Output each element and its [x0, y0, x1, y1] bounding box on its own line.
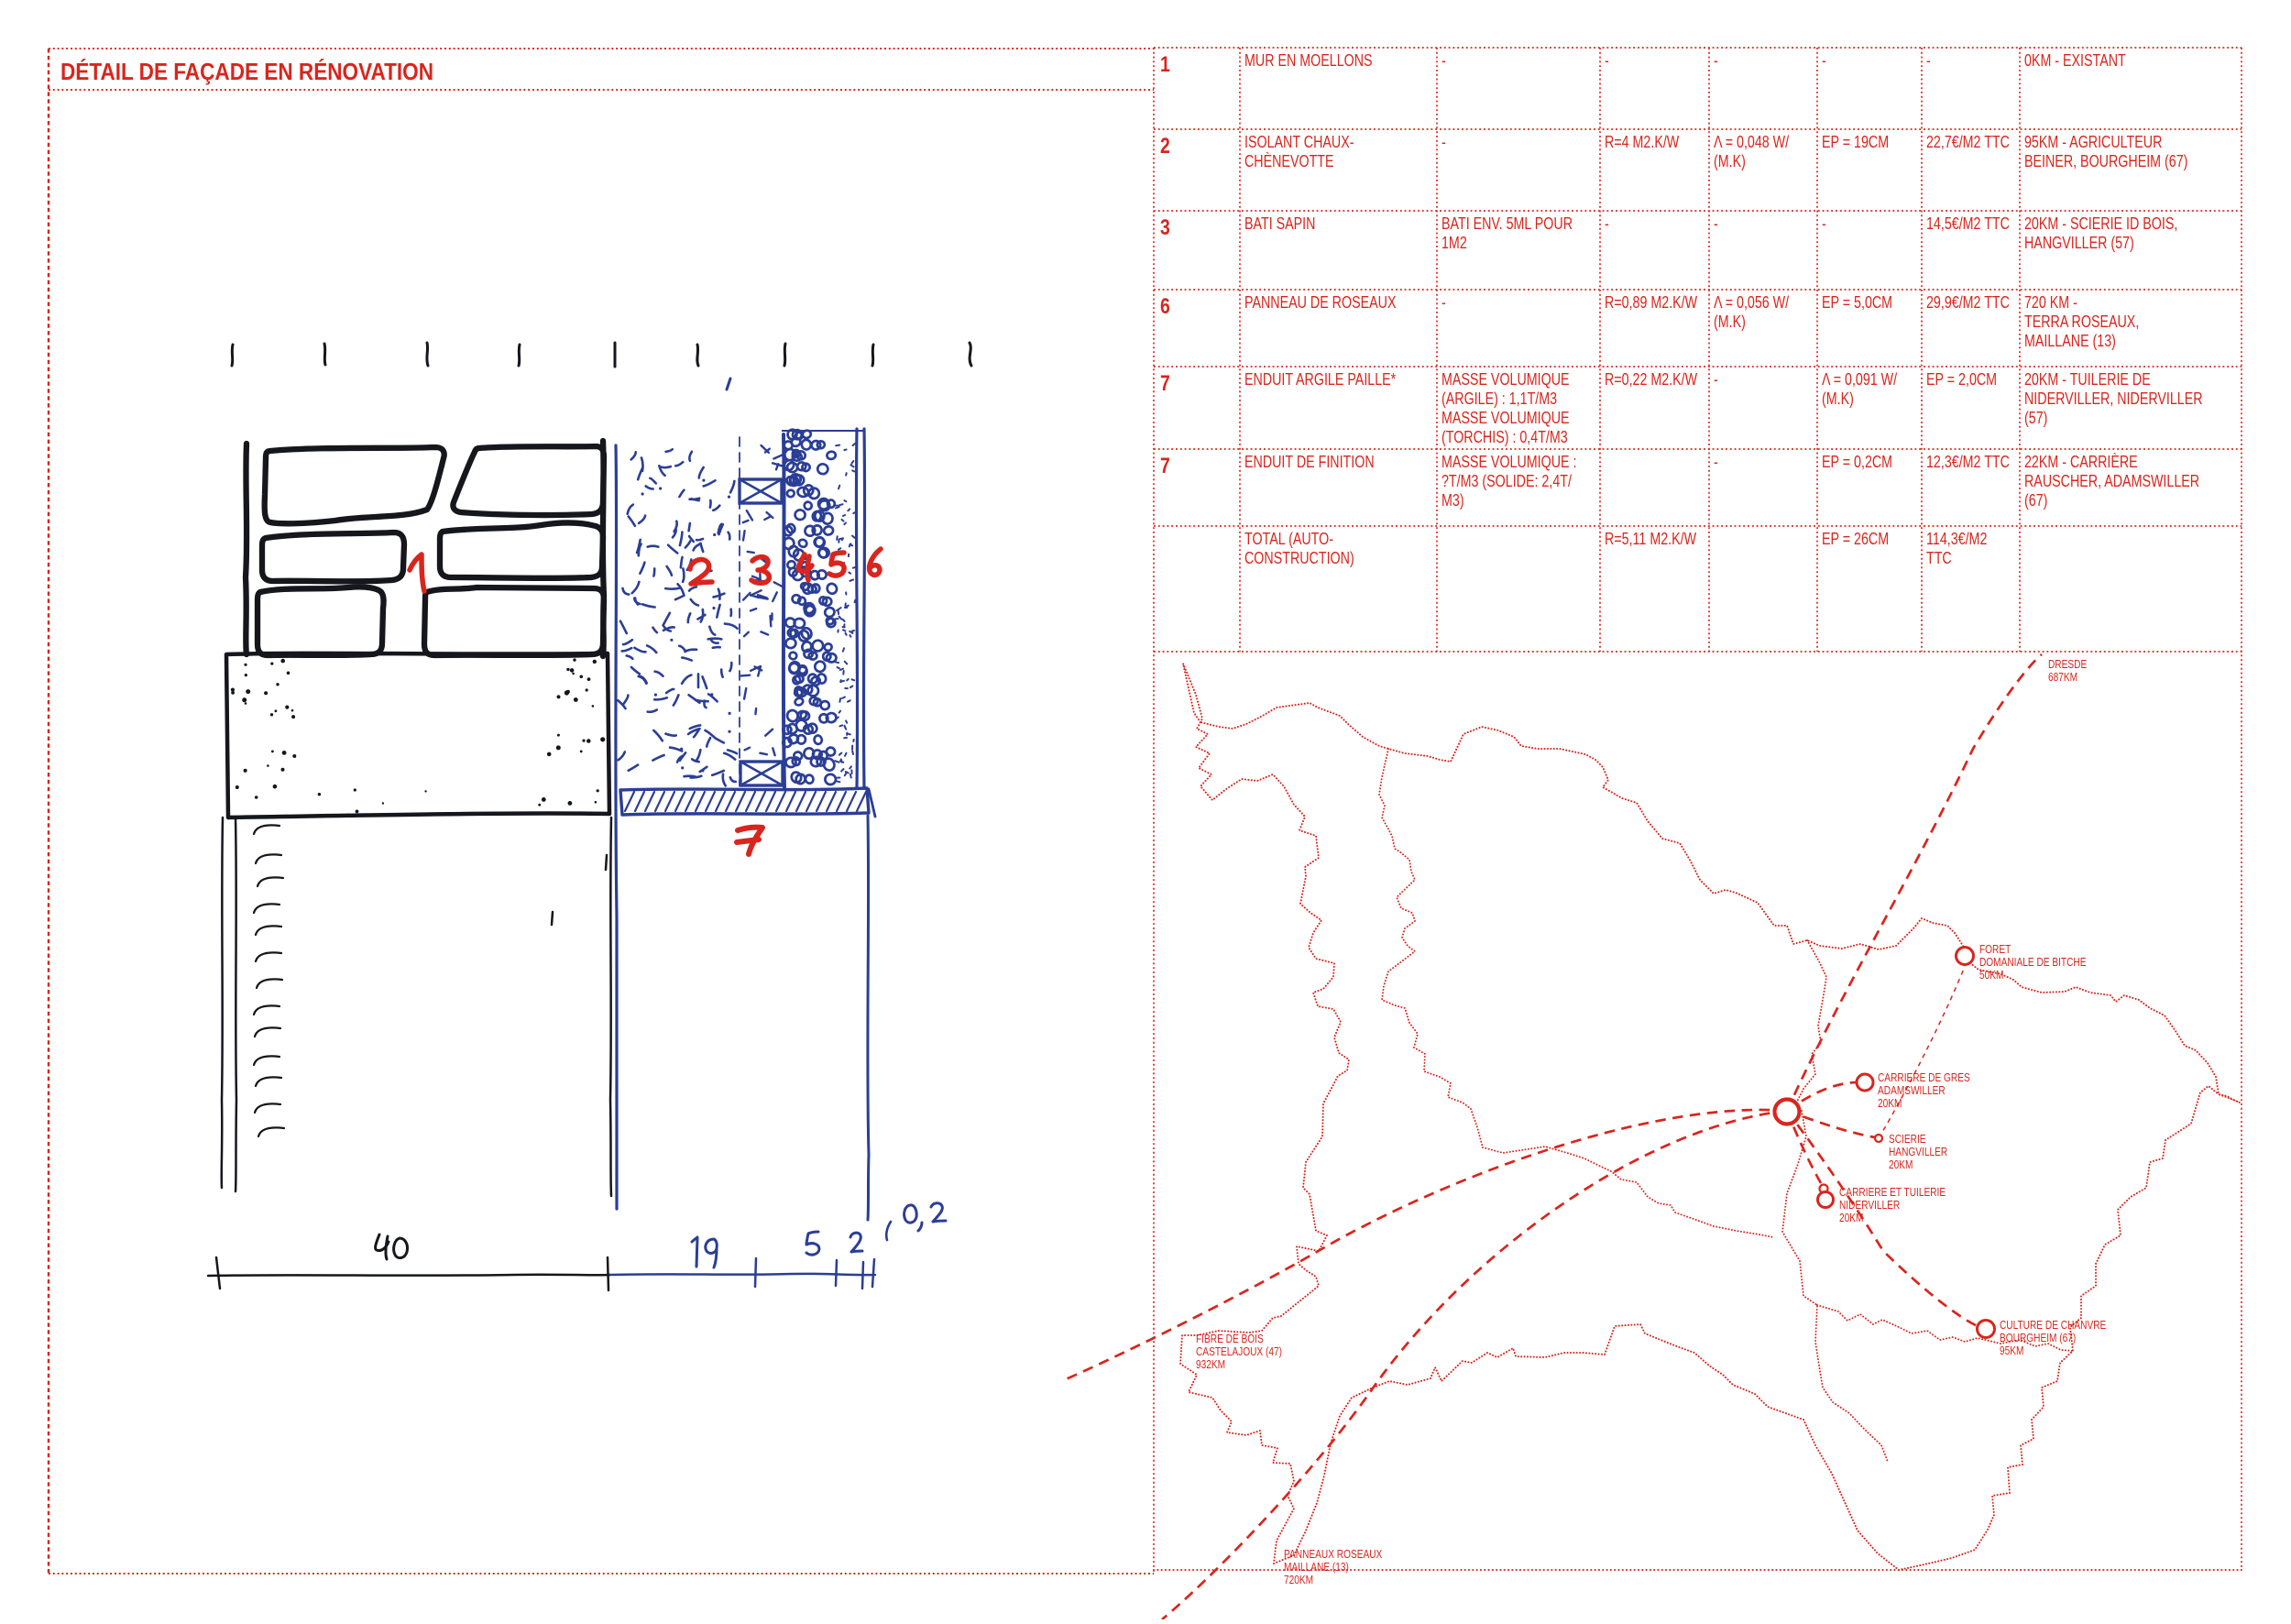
svg-text:7: 7: [1160, 453, 1170, 477]
svg-text:RAUSCHER, ADAMSWILLER: RAUSCHER, ADAMSWILLER: [2024, 472, 2199, 490]
svg-text:20KM - SCIERIE ID BOIS,: 20KM - SCIERIE ID BOIS,: [2024, 214, 2177, 233]
svg-text:MAILLANE (13): MAILLANE (13): [2024, 332, 2116, 350]
svg-text:?T/M3 (SOLIDE: 2,4T/: ?T/M3 (SOLIDE: 2,4T/: [1441, 472, 1572, 490]
svg-text:(M.K): (M.K): [1822, 390, 1854, 408]
svg-text:R=4 M2.K/W: R=4 M2.K/W: [1605, 133, 1680, 151]
svg-text:TOTAL (AUTO-: TOTAL (AUTO-: [1244, 530, 1333, 548]
svg-text:1: 1: [1160, 51, 1170, 76]
svg-text:CONSTRUCTION): CONSTRUCTION): [1244, 549, 1354, 567]
svg-text:ENDUIT DE FINITION: ENDUIT DE FINITION: [1244, 453, 1375, 471]
svg-text:-: -: [1605, 51, 1609, 70]
svg-text:22,7€/M2 TTC: 22,7€/M2 TTC: [1926, 133, 2010, 151]
svg-text:932KM: 932KM: [1196, 1358, 1225, 1371]
svg-text:HANGVILLER (57): HANGVILLER (57): [2024, 234, 2134, 252]
svg-text:PANNEAU DE ROSEAUX: PANNEAU DE ROSEAUX: [1244, 293, 1397, 312]
svg-text:DOMANIALE DE BITCHE: DOMANIALE DE BITCHE: [1979, 956, 2087, 969]
svg-text:1M2: 1M2: [1441, 234, 1467, 252]
svg-text:SCIERIE: SCIERIE: [1889, 1133, 1926, 1146]
svg-text:-: -: [1441, 293, 1446, 312]
svg-text:R=5,11 M2.K/W: R=5,11 M2.K/W: [1605, 530, 1697, 548]
svg-text:CULTURE DE CHANVRE: CULTURE DE CHANVRE: [2000, 1319, 2106, 1332]
svg-text:-: -: [1714, 453, 1718, 471]
svg-text:-: -: [1822, 51, 1826, 70]
svg-text:MASSE VOLUMIQUE :: MASSE VOLUMIQUE :: [1441, 453, 1576, 471]
svg-text:Λ = 0,091 W/: Λ = 0,091 W/: [1822, 370, 1897, 389]
svg-text:DÉTAIL DE FAÇADE EN RÉNOVATION: DÉTAIL DE FAÇADE EN RÉNOVATION: [60, 59, 433, 85]
svg-text:CHÈNEVOTTE: CHÈNEVOTTE: [1244, 151, 1334, 170]
svg-text:MASSE VOLUMIQUE: MASSE VOLUMIQUE: [1441, 370, 1570, 389]
svg-text:(57): (57): [2024, 409, 2047, 427]
svg-text:BATI ENV. 5ML POUR: BATI ENV. 5ML POUR: [1441, 214, 1573, 233]
svg-text:720KM: 720KM: [1284, 1574, 1313, 1586]
svg-text:(M.K): (M.K): [1714, 313, 1746, 331]
svg-text:Λ = 0,056 W/: Λ = 0,056 W/: [1714, 293, 1789, 312]
svg-text:0KM - EXISTANT: 0KM - EXISTANT: [2024, 51, 2126, 70]
svg-text:EP = 5,0CM: EP = 5,0CM: [1822, 293, 1892, 312]
svg-text:95KM - AGRICULTEUR: 95KM - AGRICULTEUR: [2024, 133, 2163, 151]
svg-text:NIDERVILLER: NIDERVILLER: [1839, 1199, 1900, 1212]
svg-text:(ARGILE) : 1,1T/M3: (ARGILE) : 1,1T/M3: [1441, 390, 1557, 408]
svg-text:CASTELAJOUX (47): CASTELAJOUX (47): [1196, 1345, 1282, 1358]
svg-text:ISOLANT CHAUX-: ISOLANT CHAUX-: [1244, 133, 1354, 151]
svg-text:-: -: [1714, 370, 1718, 389]
svg-text:(67): (67): [2024, 491, 2047, 510]
svg-text:R=0,89 M2.K/W: R=0,89 M2.K/W: [1605, 293, 1698, 312]
svg-text:EP = 2,0CM: EP = 2,0CM: [1926, 370, 1997, 389]
svg-text:22KM - CARRIÈRE: 22KM - CARRIÈRE: [2024, 452, 2138, 471]
svg-text:HANGVILLER: HANGVILLER: [1889, 1146, 1947, 1158]
svg-text:EP = 19CM: EP = 19CM: [1822, 133, 1889, 151]
svg-text:PANNEAUX ROSEAUX: PANNEAUX ROSEAUX: [1284, 1548, 1382, 1561]
svg-text:MAILLANE (13): MAILLANE (13): [1284, 1561, 1349, 1574]
svg-text:-: -: [1441, 133, 1446, 151]
svg-text:2: 2: [1160, 133, 1170, 158]
svg-text:DRESDE: DRESDE: [2048, 658, 2087, 671]
svg-text:7: 7: [1160, 370, 1170, 395]
svg-text:CARRIERE ET TUILERIE: CARRIERE ET TUILERIE: [1839, 1186, 1946, 1199]
svg-text:EP = 0,2CM: EP = 0,2CM: [1822, 453, 1892, 471]
svg-text:TTC: TTC: [1926, 549, 1952, 567]
svg-text:FORET: FORET: [1979, 943, 2011, 956]
svg-text:720 KM -: 720 KM -: [2024, 293, 2077, 312]
svg-text:20KM: 20KM: [1839, 1212, 1863, 1224]
svg-text:ADAMSWILLER: ADAMSWILLER: [1878, 1084, 1946, 1097]
svg-text:NIDERVILLER, NIDERVILLER: NIDERVILLER, NIDERVILLER: [2024, 390, 2203, 408]
svg-text:20KM: 20KM: [1889, 1158, 1913, 1171]
svg-text:ENDUIT ARGILE PAILLE*: ENDUIT ARGILE PAILLE*: [1244, 370, 1397, 389]
svg-text:20KM - TUILERIE DE: 20KM - TUILERIE DE: [2024, 370, 2151, 389]
svg-text:-: -: [1714, 214, 1718, 233]
svg-text:20KM: 20KM: [1878, 1097, 1902, 1110]
svg-text:MASSE VOLUMIQUE: MASSE VOLUMIQUE: [1441, 409, 1570, 427]
svg-text:-: -: [1714, 51, 1718, 70]
svg-text:BEINER, BOURGHEIM (67): BEINER, BOURGHEIM (67): [2024, 152, 2187, 170]
svg-text:FIBRE DE BOIS: FIBRE DE BOIS: [1196, 1333, 1264, 1345]
svg-text:-: -: [1441, 51, 1446, 70]
svg-text:M3): M3): [1441, 491, 1464, 510]
svg-text:114,3€/M2: 114,3€/M2: [1926, 530, 1987, 548]
svg-text:14,5€/M2 TTC: 14,5€/M2 TTC: [1926, 214, 2010, 233]
svg-text:CARRIERE DE GRES: CARRIERE DE GRES: [1878, 1071, 1970, 1084]
svg-text:(M.K): (M.K): [1714, 152, 1746, 170]
svg-text:29,9€/M2 TTC: 29,9€/M2 TTC: [1926, 293, 2010, 312]
svg-text:12,3€/M2 TTC: 12,3€/M2 TTC: [1926, 453, 2010, 471]
svg-text:EP = 26CM: EP = 26CM: [1822, 530, 1889, 548]
svg-text:Λ = 0,048 W/: Λ = 0,048 W/: [1714, 133, 1789, 151]
svg-text:95KM: 95KM: [2000, 1344, 2023, 1357]
svg-text:MUR EN MOELLONS: MUR EN MOELLONS: [1244, 51, 1373, 70]
svg-text:50KM: 50KM: [1979, 969, 2003, 982]
svg-text:(TORCHIS) : 0,4T/M3: (TORCHIS) : 0,4T/M3: [1441, 428, 1568, 446]
svg-text:6: 6: [1160, 293, 1170, 318]
svg-text:-: -: [1822, 214, 1826, 233]
svg-text:R=0,22 M2.K/W: R=0,22 M2.K/W: [1605, 370, 1698, 389]
svg-text:-: -: [1926, 51, 1931, 70]
svg-text:BATI SAPIN: BATI SAPIN: [1244, 214, 1315, 233]
svg-text:3: 3: [1160, 214, 1170, 239]
svg-text:687KM: 687KM: [2048, 671, 2077, 684]
svg-text:-: -: [1605, 214, 1609, 233]
svg-text:BOURGHEIM (67): BOURGHEIM (67): [2000, 1332, 2076, 1344]
svg-text:TERRA ROSEAUX,: TERRA ROSEAUX,: [2024, 313, 2139, 331]
